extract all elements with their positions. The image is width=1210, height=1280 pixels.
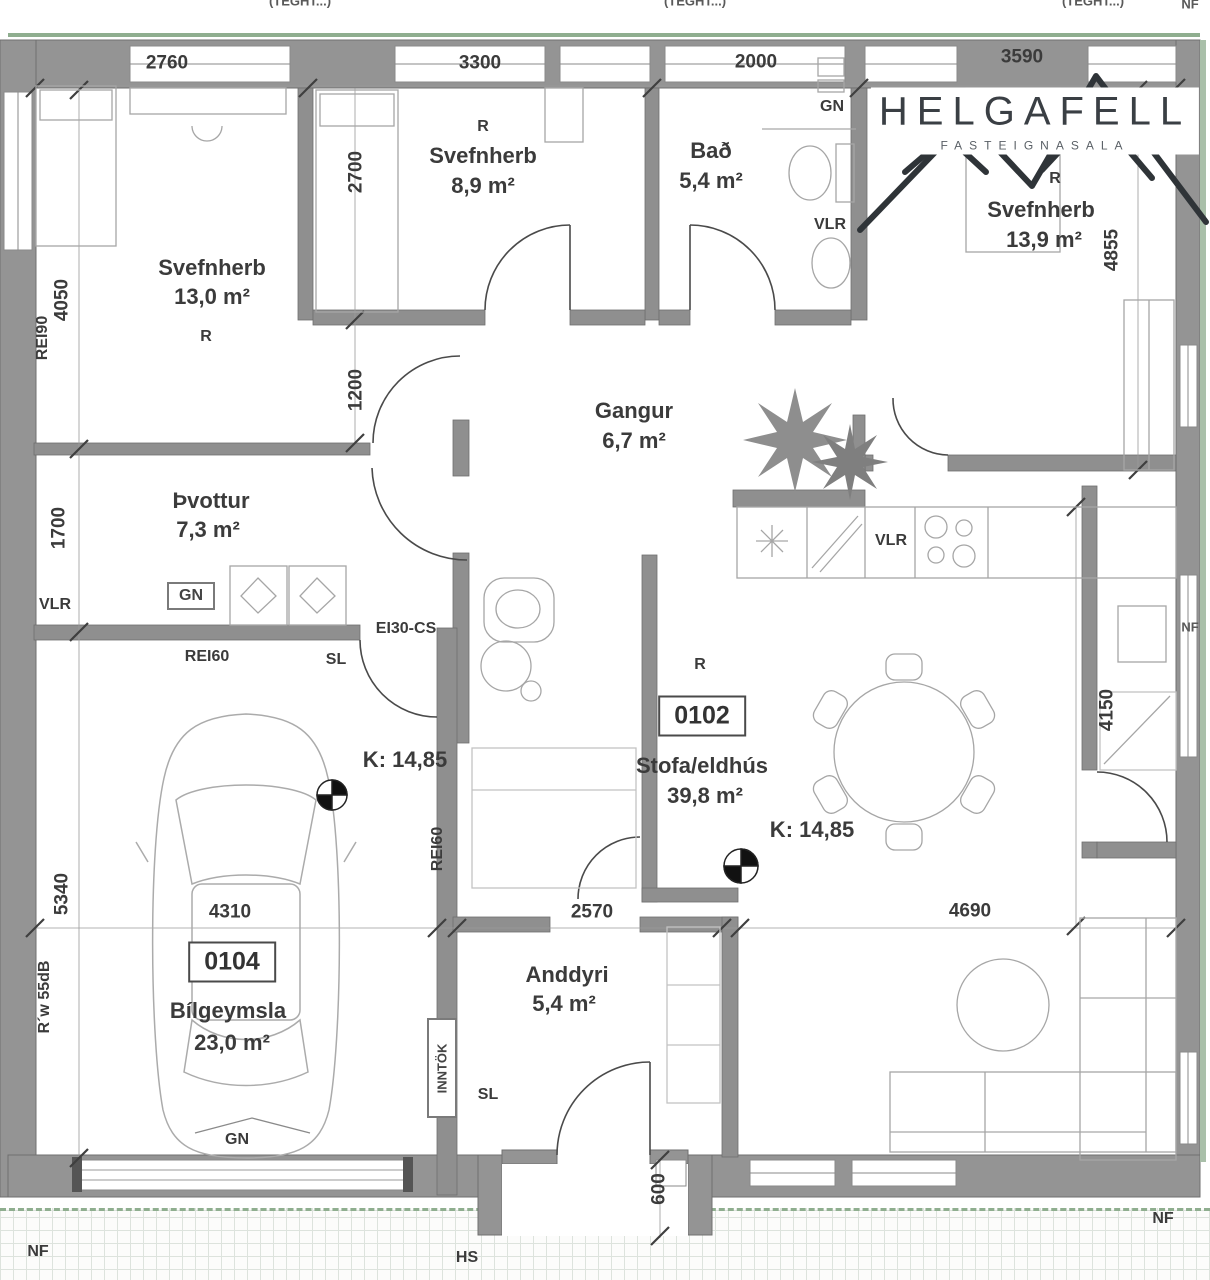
floor-plan: HELGAFELL FASTEIGNASALA 2760 3300 2000 3… — [0, 0, 1210, 1280]
room-tag-svefnherb-ne: R — [1049, 171, 1061, 187]
room-name-anddyri: Anddyri — [525, 964, 608, 986]
symbol-vlr-left: VLR — [39, 597, 71, 613]
symbol-inntok: INNTÖK — [435, 1043, 450, 1093]
symbol-hs: HS — [456, 1250, 478, 1266]
logo-title: HELGAFELL — [879, 90, 1191, 135]
room-tag-svefnherb-nw: R — [200, 329, 212, 345]
room-area-bad: 5,4 m² — [679, 170, 743, 192]
room-name-svefnherb-n: Svefnherb — [429, 145, 537, 167]
dim-4310: 4310 — [209, 903, 251, 922]
symbol-gn-bad: GN — [820, 99, 844, 115]
wall-tag-ei30: EI30-CS — [376, 621, 436, 637]
logo-mountains-icon — [0, 0, 1210, 1280]
dim-5340: 5340 — [53, 873, 72, 915]
symbol-sl-anddyri: SL — [478, 1087, 498, 1103]
window-head-tag-2: (TEGHT...) — [664, 0, 726, 8]
room-area-svefnherb-ne: 13,9 m² — [1006, 229, 1082, 251]
logo-tagline: FASTEIGNASALA — [879, 139, 1191, 153]
wall-tag-rw55: R´w 55dB — [37, 961, 53, 1034]
dim-2000: 2000 — [735, 53, 777, 72]
room-tag-stofa: R — [694, 657, 706, 673]
unit-number-0102: 0102 — [658, 696, 746, 737]
dim-4150: 4150 — [1098, 689, 1117, 731]
room-area-stofa: 39,8 m² — [667, 785, 743, 807]
room-name-svefnherb-nw: Svefnherb — [158, 257, 266, 279]
dim-1700: 1700 — [50, 507, 69, 549]
room-area-anddyri: 5,4 m² — [532, 993, 596, 1015]
dim-4690: 4690 — [949, 902, 991, 921]
wall-tag-rei90: REI90 — [35, 316, 51, 360]
dim-4855: 4855 — [1103, 229, 1122, 271]
room-name-svefnherb-ne: Svefnherb — [987, 199, 1095, 221]
room-area-garage: 23,0 m² — [194, 1032, 270, 1054]
symbol-nf-ne: NF — [1181, 0, 1198, 11]
symbol-nf-east: NF — [1181, 621, 1198, 634]
dim-2700: 2700 — [347, 151, 366, 193]
dim-2570: 2570 — [571, 903, 613, 922]
room-name-stofa: Stofa/eldhús — [636, 755, 768, 777]
dim-3300: 3300 — [459, 54, 501, 73]
symbol-gn-garage: GN — [225, 1132, 249, 1148]
symbol-inntok-box: INNTÖK — [427, 1018, 457, 1118]
symbol-nf-sw: NF — [27, 1244, 48, 1260]
dim-1200: 1200 — [347, 369, 366, 411]
dim-4050: 4050 — [53, 279, 72, 321]
dim-600: 600 — [650, 1173, 669, 1205]
wall-tag-rei60-garage: REI60 — [430, 827, 446, 871]
room-name-garage: Bílgeymsla — [170, 1000, 286, 1022]
room-level-stofa: K: 14,85 — [770, 819, 854, 841]
window-head-tag-3: (TEGHT...) — [1062, 0, 1124, 8]
room-name-gangur: Gangur — [595, 400, 673, 422]
room-area-thvottur: 7,3 m² — [176, 519, 240, 541]
room-level-garage: K: 14,85 — [363, 749, 447, 771]
symbol-vlr-kitchen: VLR — [875, 533, 907, 549]
symbol-nf-se: NF — [1152, 1211, 1173, 1227]
room-area-gangur: 6,7 m² — [602, 430, 666, 452]
logo: HELGAFELL FASTEIGNASALA — [871, 88, 1199, 155]
room-name-thvottur: Þvottur — [173, 490, 250, 512]
wall-tag-rei60: REI60 — [185, 649, 229, 665]
dim-3590: 3590 — [1001, 48, 1043, 67]
symbol-sl-thvottur: SL — [326, 652, 346, 668]
room-area-svefnherb-nw: 13,0 m² — [174, 286, 250, 308]
room-tag-svefnherb-n: R — [477, 119, 489, 135]
dim-2760: 2760 — [146, 54, 188, 73]
window-head-tag-1: (TEGHT...) — [269, 0, 331, 8]
room-name-bad: Bað — [690, 140, 732, 162]
symbol-vlr-bad: VLR — [814, 217, 846, 233]
symbol-gn-thvottur: GN — [167, 582, 215, 610]
room-area-svefnherb-n: 8,9 m² — [451, 175, 515, 197]
unit-number-0104: 0104 — [188, 942, 276, 983]
